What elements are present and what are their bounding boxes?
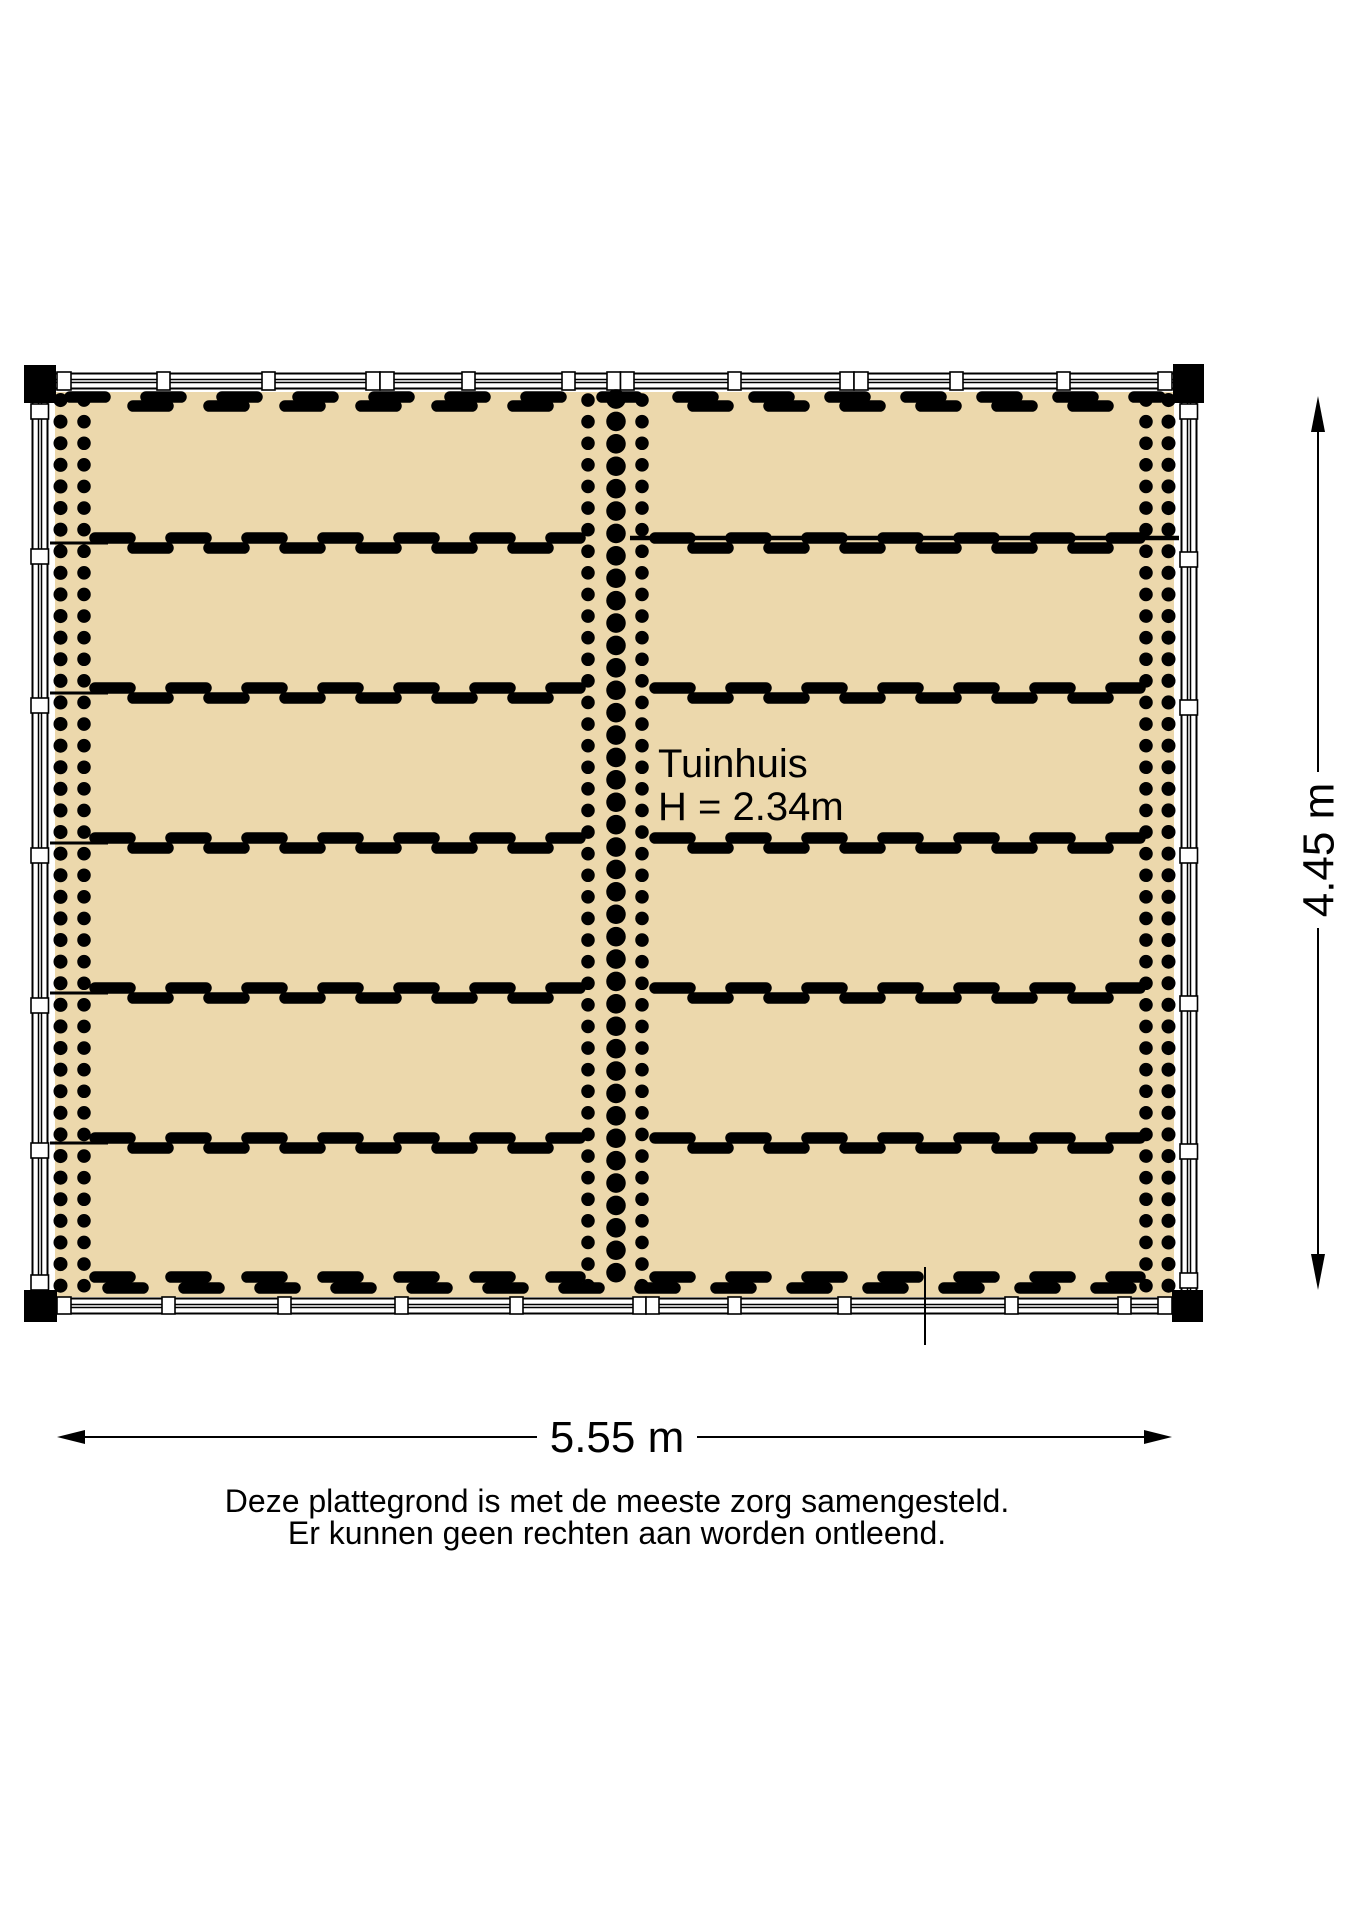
arrow-left-icon: [57, 1430, 85, 1444]
width-dimension-arrow: 5.55 m: [57, 1413, 1172, 1462]
floor-plan-svg: Tuinhuis H = 2.34m 4.45 m 5.55 m Deze pl…: [0, 0, 1358, 1920]
wall-top: [56, 372, 1173, 390]
disclaimer-line-1: Deze plattegrond is met de meeste zorg s…: [225, 1483, 1009, 1519]
width-dimension-label: 5.55 m: [550, 1413, 685, 1462]
disclaimer-line-2: Er kunnen geen rechten aan worden ontlee…: [288, 1515, 946, 1551]
wall-bottom: [57, 1297, 1173, 1314]
corner-post-top-left: [24, 365, 56, 403]
corner-post-bottom-left: [24, 1290, 57, 1322]
height-dimension-arrow: 4.45 m: [1294, 396, 1343, 1290]
arrow-right-icon: [1144, 1430, 1172, 1444]
corner-post-bottom-right: [1172, 1290, 1203, 1322]
room-name-label: Tuinhuis: [658, 742, 808, 786]
floor-plan-page: Tuinhuis H = 2.34m 4.45 m 5.55 m Deze pl…: [0, 0, 1358, 1920]
corner-post-top-right: [1173, 364, 1204, 403]
disclaimer: Deze plattegrond is met de meeste zorg s…: [225, 1483, 1009, 1551]
wall-left: [31, 403, 49, 1290]
wall-right: [1180, 403, 1198, 1290]
height-dimension-label: 4.45 m: [1294, 783, 1343, 918]
arrow-up-icon: [1311, 396, 1325, 432]
arrow-down-icon: [1311, 1254, 1325, 1290]
room-height-label: H = 2.34m: [658, 785, 844, 829]
